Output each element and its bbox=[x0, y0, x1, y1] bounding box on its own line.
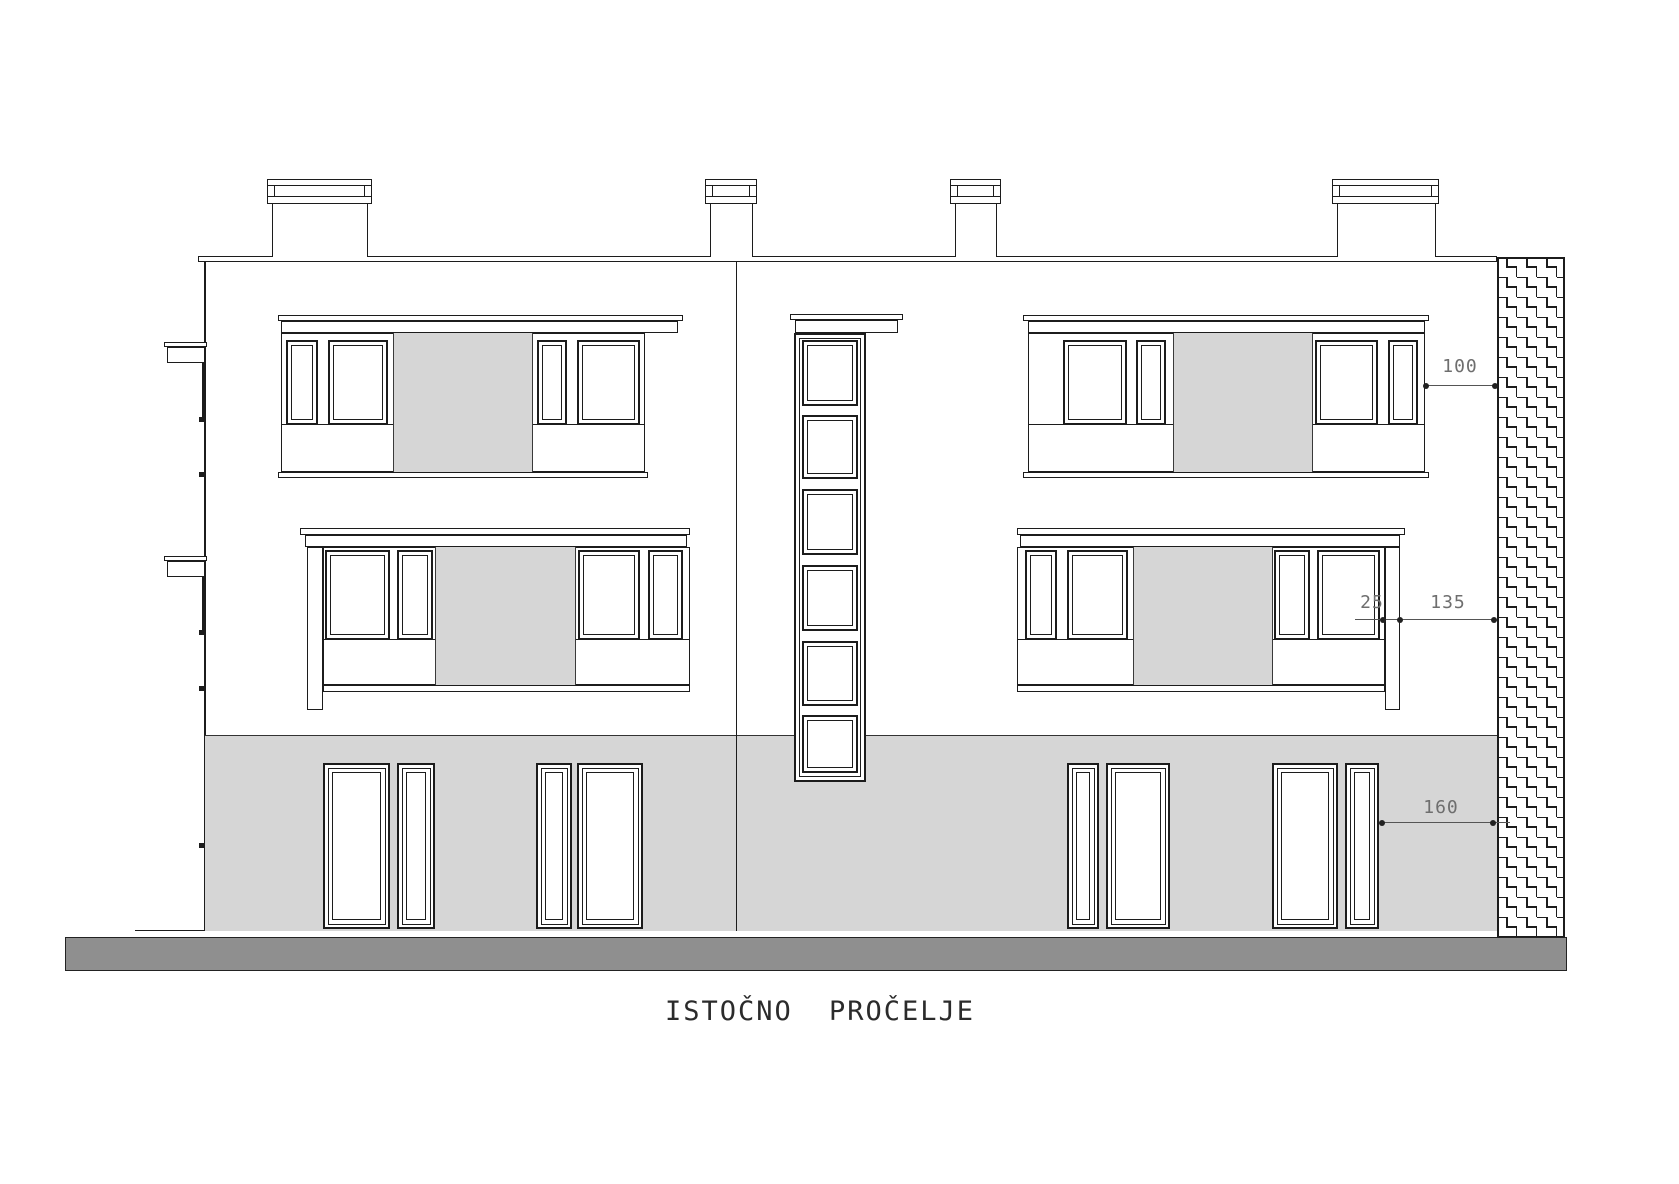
wall-anchor-5 bbox=[199, 843, 205, 848]
chimney-3-cap bbox=[950, 179, 1001, 204]
door-ground-3 bbox=[536, 763, 572, 929]
dimension-100-dot-right bbox=[1492, 383, 1498, 389]
stair-pane-6 bbox=[802, 715, 858, 773]
door-ground-2 bbox=[397, 763, 435, 929]
dimension-100-line bbox=[1426, 385, 1496, 386]
door-ground-5 bbox=[1067, 763, 1099, 929]
wall-anchor-2 bbox=[199, 472, 205, 477]
stair-pane-3 bbox=[802, 489, 858, 555]
stair-pane-2 bbox=[802, 415, 858, 479]
upper-right-base-band bbox=[1023, 472, 1429, 478]
upper-left-canopy-fascia bbox=[281, 321, 678, 333]
chimney-4-body bbox=[1337, 203, 1436, 257]
balcony-profile-1-box bbox=[167, 347, 205, 363]
mid-left-canopy-fascia bbox=[305, 535, 687, 547]
dimension-25-label: 25 bbox=[1345, 592, 1399, 613]
party-wall-line bbox=[736, 262, 737, 931]
balcony-profile-2-edge bbox=[202, 577, 205, 631]
window-upper-right-2 bbox=[1136, 340, 1166, 425]
window-mid-right-3 bbox=[1274, 550, 1310, 640]
window-mid-left-3 bbox=[578, 550, 640, 640]
wall-anchor-3 bbox=[199, 630, 205, 635]
dimension-135-dot-right bbox=[1491, 617, 1497, 623]
dimension-160-label: 160 bbox=[1413, 797, 1469, 818]
dimension-25-dot-right bbox=[1397, 617, 1403, 623]
dimension-160-dot-left bbox=[1379, 820, 1385, 826]
chimney-1-body bbox=[272, 203, 368, 257]
chimney-1-cap bbox=[267, 179, 372, 204]
dimension-135-label: 135 bbox=[1420, 592, 1476, 613]
window-upper-right-1 bbox=[1063, 340, 1127, 425]
mid-right-post bbox=[1385, 547, 1400, 710]
window-upper-left-4 bbox=[577, 340, 640, 425]
window-upper-left-2 bbox=[328, 340, 388, 425]
window-upper-right-3 bbox=[1315, 340, 1378, 425]
mid-left-canopy-slab bbox=[300, 528, 690, 535]
mid-right-base-band bbox=[1017, 685, 1385, 692]
stair-canopy-fascia bbox=[795, 320, 898, 333]
ground-bar bbox=[65, 937, 1567, 971]
upper-right-canopy-fascia bbox=[1028, 321, 1425, 333]
dimension-160-dot-right bbox=[1490, 820, 1496, 826]
door-ground-8 bbox=[1345, 763, 1379, 929]
balcony-profile-1-edge bbox=[202, 363, 205, 418]
window-upper-left-1 bbox=[286, 340, 318, 425]
wall-anchor-4 bbox=[199, 686, 205, 691]
stair-pane-4 bbox=[802, 565, 858, 631]
dimension-100-label: 100 bbox=[1432, 356, 1488, 377]
chimney-2-body bbox=[710, 203, 753, 257]
window-mid-right-2 bbox=[1067, 550, 1128, 640]
window-mid-left-2 bbox=[397, 550, 433, 640]
upper-right-wall-panel bbox=[1173, 333, 1313, 472]
elevation-drawing: 100 25 135 160 ISTOČNO PROČELJE bbox=[0, 0, 1679, 1184]
door-ground-1 bbox=[323, 763, 390, 929]
upper-left-wall-panel bbox=[393, 333, 533, 472]
stair-pane-5 bbox=[802, 641, 858, 706]
mid-right-canopy-fascia bbox=[1020, 535, 1400, 547]
side-wall-hatch bbox=[1497, 257, 1565, 937]
wall-anchor-1 bbox=[199, 417, 205, 422]
roof-band bbox=[198, 256, 1497, 262]
door-ground-6 bbox=[1106, 763, 1170, 929]
mid-right-canopy-slab bbox=[1017, 528, 1405, 535]
mid-left-wall-panel bbox=[435, 547, 576, 685]
chimney-2-cap bbox=[705, 179, 757, 204]
chimney-4-cap bbox=[1332, 179, 1439, 204]
dimension-25-dot-left bbox=[1380, 617, 1386, 623]
balcony-profile-2-box bbox=[167, 561, 205, 577]
door-ground-7 bbox=[1272, 763, 1338, 929]
mid-left-base-band bbox=[323, 685, 690, 692]
chimney-3-body bbox=[955, 203, 997, 257]
window-mid-left-4 bbox=[648, 550, 683, 640]
upper-left-base-band bbox=[278, 472, 648, 478]
window-mid-left-1 bbox=[325, 550, 390, 640]
window-mid-right-1 bbox=[1025, 550, 1057, 640]
mid-left-post bbox=[307, 547, 323, 710]
drawing-title: ISTOČNO PROČELJE bbox=[600, 996, 1040, 1027]
dimension-100-dot-left bbox=[1423, 383, 1429, 389]
dimension-25-135-line bbox=[1355, 619, 1496, 620]
door-ground-4 bbox=[577, 763, 643, 929]
mid-right-wall-panel bbox=[1133, 547, 1273, 685]
window-upper-left-3 bbox=[537, 340, 567, 425]
window-upper-right-4 bbox=[1388, 340, 1418, 425]
stair-pane-1 bbox=[802, 340, 858, 406]
